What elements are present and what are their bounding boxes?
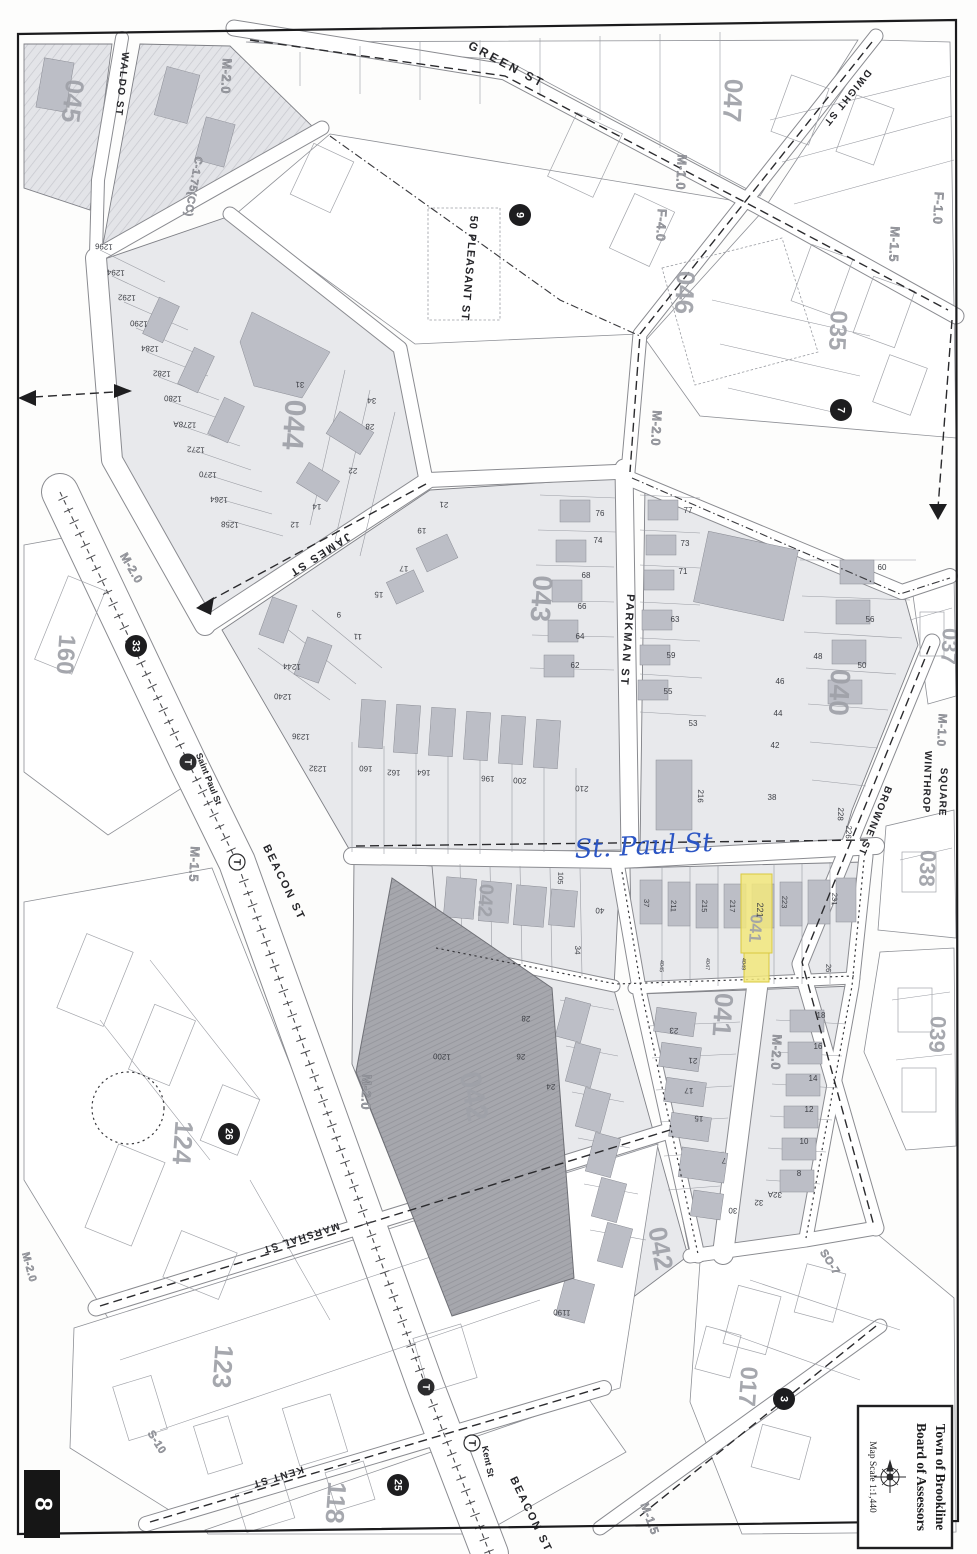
parcel-label-32: 32 xyxy=(754,1198,764,1207)
parcel-label-37: 37 xyxy=(642,899,651,908)
parcel-label-1270: 1270 xyxy=(198,470,217,480)
svg-text:T: T xyxy=(466,1440,477,1446)
parcel-label-200: 200 xyxy=(512,776,526,786)
parcel-label-17: 17 xyxy=(684,1086,694,1095)
svg-text:7: 7 xyxy=(835,407,847,413)
svg-text:33: 33 xyxy=(130,640,142,652)
street-label-winthrop: WINTHROP xyxy=(920,751,933,814)
parcel-label-24: 24 xyxy=(546,1082,556,1091)
svg-text:3: 3 xyxy=(778,1396,790,1402)
parcel-label-1258: 1258 xyxy=(220,520,239,530)
parcel-label-4045: 4045 xyxy=(658,960,664,972)
map-scale: Map Scale 1:1,440 xyxy=(867,1441,877,1513)
title-line2: Board of Assessors xyxy=(914,1423,929,1531)
parcel-label-21: 21 xyxy=(439,500,449,509)
parcel-label-34: 34 xyxy=(367,396,377,405)
svg-text:T: T xyxy=(420,1384,431,1390)
parcel-label-1240: 1240 xyxy=(273,692,292,702)
parcel-label-1244: 1244 xyxy=(282,662,301,672)
parcel-label-160: 160 xyxy=(358,764,372,774)
svg-text:T: T xyxy=(231,859,242,865)
badge-26: 26 xyxy=(218,1123,240,1145)
parcel-label-16: 16 xyxy=(814,1042,823,1051)
block-label-041: 041 xyxy=(745,914,766,944)
parcel-label-28: 28 xyxy=(521,1014,531,1023)
parcel-label-59: 59 xyxy=(667,651,676,660)
t-station-icon: T xyxy=(229,854,245,870)
block-label-124: 124 xyxy=(166,1120,199,1166)
highlighted-parcel-label-221: 221 xyxy=(755,902,766,917)
parcel-label-1278a: 1278A xyxy=(172,419,196,429)
block-label-046: 046 xyxy=(669,270,701,315)
parcel-label-1282: 1282 xyxy=(152,369,171,379)
block-label-041: 041 xyxy=(707,992,740,1037)
zoning-label-m-2-0: M-2.0 xyxy=(648,410,665,446)
parcel-label-26: 26 xyxy=(516,1052,526,1061)
parcel-label-14: 14 xyxy=(312,502,322,511)
parcel-label-4047: 4047 xyxy=(704,958,710,970)
parcel-label-12: 12 xyxy=(805,1105,814,1114)
badge-33: 33 xyxy=(125,635,147,657)
parcel-label-211: 211 xyxy=(669,900,678,912)
parcel-label-196: 196 xyxy=(480,774,494,784)
block-label-035: 035 xyxy=(823,310,852,351)
parcel-label-60: 60 xyxy=(878,563,887,572)
block-label-123: 123 xyxy=(207,1344,240,1389)
blocks-layer xyxy=(24,40,956,1534)
zoning-label-f-4-0: F-4.0 xyxy=(653,208,670,242)
title-line1: Town of Brookline xyxy=(933,1424,948,1531)
zoning-label-m-1-0: M-1.0 xyxy=(673,154,690,190)
parcel-label-10: 10 xyxy=(800,1137,809,1146)
parcel-label-210: 210 xyxy=(574,784,588,794)
parcel-label-26: 26 xyxy=(824,964,833,973)
parcel-label-162: 162 xyxy=(386,768,400,778)
parcel-label-105: 105 xyxy=(556,872,565,885)
zoning-label-m-1-5: M-1.5 xyxy=(886,226,903,262)
parcel-label-30: 30 xyxy=(728,1206,738,1215)
parcel-label-18: 18 xyxy=(817,1011,826,1020)
zoning-label-m-1-5: M-1.5 xyxy=(186,846,203,882)
page-number: 8 xyxy=(29,1497,56,1511)
parcel-label-1190: 1190 xyxy=(552,1308,570,1318)
parcel-label-21: 21 xyxy=(688,1056,698,1065)
block-label-040: 040 xyxy=(823,668,856,716)
badge-3: 3 xyxy=(773,1388,795,1410)
parcel-label-1280: 1280 xyxy=(163,394,182,404)
svg-text:9: 9 xyxy=(514,212,526,218)
block-label-042: 042 xyxy=(473,883,497,918)
parcel-label-53: 53 xyxy=(689,719,698,728)
zoning-label-m-1-5: M-1.5 xyxy=(638,1501,663,1537)
zoning-label-m-2-0: M-2.0 xyxy=(768,1034,785,1070)
parcel-label-19: 19 xyxy=(417,526,427,535)
t-station-icon: T xyxy=(464,1435,480,1451)
zoning-label-m-2-0: M-2.0 xyxy=(19,1251,39,1284)
parcel-label-68: 68 xyxy=(582,571,591,580)
block-label-047: 047 xyxy=(717,78,749,123)
parcel-label-31: 31 xyxy=(295,380,305,389)
parcel-label-1284: 1284 xyxy=(140,344,159,354)
parcel-label-4049: 4049 xyxy=(740,958,746,970)
parcel-label-63: 63 xyxy=(671,615,680,624)
parcel-label-74: 74 xyxy=(594,536,603,545)
parcel-label-1290: 1290 xyxy=(129,319,148,329)
parcel-label-217: 217 xyxy=(728,900,737,913)
block-label-037: 037 xyxy=(936,627,963,665)
parcel-label-1292: 1292 xyxy=(117,293,136,303)
parcel-label-46: 46 xyxy=(776,677,785,686)
block-label-038: 038 xyxy=(914,849,941,887)
parcel-label-228: 228 xyxy=(836,807,845,821)
page-number-box: 8 xyxy=(24,1470,60,1538)
block-label-039: 039 xyxy=(924,1015,951,1053)
parcel-label-215: 215 xyxy=(700,900,709,913)
block-label-045: 045 xyxy=(55,78,90,125)
parcel-label-64: 64 xyxy=(576,632,585,641)
assessors-map-page: 0450440470460350430400370380391600420420… xyxy=(0,0,977,1554)
parcel-label-1236: 1236 xyxy=(291,732,310,742)
parcel-label-15: 15 xyxy=(374,590,384,599)
parcel-label-1264: 1264 xyxy=(209,495,228,505)
parcel-label-66: 66 xyxy=(578,602,587,611)
parcel-label-164: 164 xyxy=(416,768,430,778)
zoning-label-m-1-0: M-1.0 xyxy=(934,713,950,747)
block-label-017: 017 xyxy=(733,1366,763,1408)
badge-25: 25 xyxy=(387,1474,409,1496)
parcel-label-23: 23 xyxy=(669,1026,679,1035)
parcel-label-34: 34 xyxy=(573,945,582,955)
block-label-118: 118 xyxy=(320,1481,353,1525)
block-label-044: 044 xyxy=(275,399,311,452)
parcel-label-32a: 32A xyxy=(767,1190,782,1200)
block-label-160: 160 xyxy=(51,634,81,676)
parcel-label-12: 12 xyxy=(290,520,300,529)
parcel-label-17: 17 xyxy=(399,564,409,573)
title-block: Town of Brookline Board of Assessors Map… xyxy=(858,1406,952,1548)
parcel-label-14: 14 xyxy=(809,1074,818,1083)
badge-9: 9 xyxy=(509,204,531,226)
parcel-label-44: 44 xyxy=(774,709,783,718)
parcel-label-1232: 1232 xyxy=(308,764,327,774)
parcel-label-38: 38 xyxy=(768,793,777,802)
parcel-label-40: 40 xyxy=(595,906,605,915)
t-station-icon: T xyxy=(180,754,196,770)
parcel-label-1294: 1294 xyxy=(106,268,125,278)
parcel-label-71: 71 xyxy=(679,567,688,576)
zoning-label-f-1-0: F-1.0 xyxy=(930,191,947,225)
parcel-label-28: 28 xyxy=(365,422,375,431)
parcel-label-1272: 1272 xyxy=(186,445,205,455)
parcel-label-73: 73 xyxy=(681,539,690,548)
parcel-label-22: 22 xyxy=(348,466,358,475)
assessors-map: 0450440470460350430400370380391600420420… xyxy=(0,0,977,1554)
parcel-label-223: 223 xyxy=(780,896,789,909)
parcel-label-226: 226 xyxy=(844,825,853,839)
parcel-label-55: 55 xyxy=(664,687,673,696)
parcel-label-11: 11 xyxy=(353,632,362,641)
svg-text:25: 25 xyxy=(392,1479,404,1491)
parcel-label-42: 42 xyxy=(771,741,780,750)
parcel-label-76: 76 xyxy=(596,509,605,518)
parcel-label-56: 56 xyxy=(866,615,875,624)
parcel-label-15: 15 xyxy=(694,1114,704,1123)
parcel-label-77: 77 xyxy=(684,506,693,515)
zoning-label-m-2-0: M-2.0 xyxy=(218,58,235,94)
parcel-label-216: 216 xyxy=(696,789,705,803)
t-station-icon: T xyxy=(418,1379,434,1395)
parcel-label-231: 231 xyxy=(830,893,839,906)
parcel-label-1200: 1200 xyxy=(432,1052,451,1062)
parcel-label-48: 48 xyxy=(814,652,823,661)
block-label-043: 043 xyxy=(524,574,558,623)
badge-7: 7 xyxy=(830,399,852,421)
svg-text:T: T xyxy=(182,759,193,765)
parcel-label-62: 62 xyxy=(571,661,580,670)
parcel-label-50: 50 xyxy=(858,661,867,670)
parcel-label-1296: 1296 xyxy=(94,242,113,252)
zoning-label-m-2-0: M-2.0 xyxy=(358,1074,375,1110)
svg-text:26: 26 xyxy=(223,1128,235,1140)
parcel-label-8: 8 xyxy=(797,1169,802,1178)
street-label-square: SQUARE xyxy=(936,768,949,817)
